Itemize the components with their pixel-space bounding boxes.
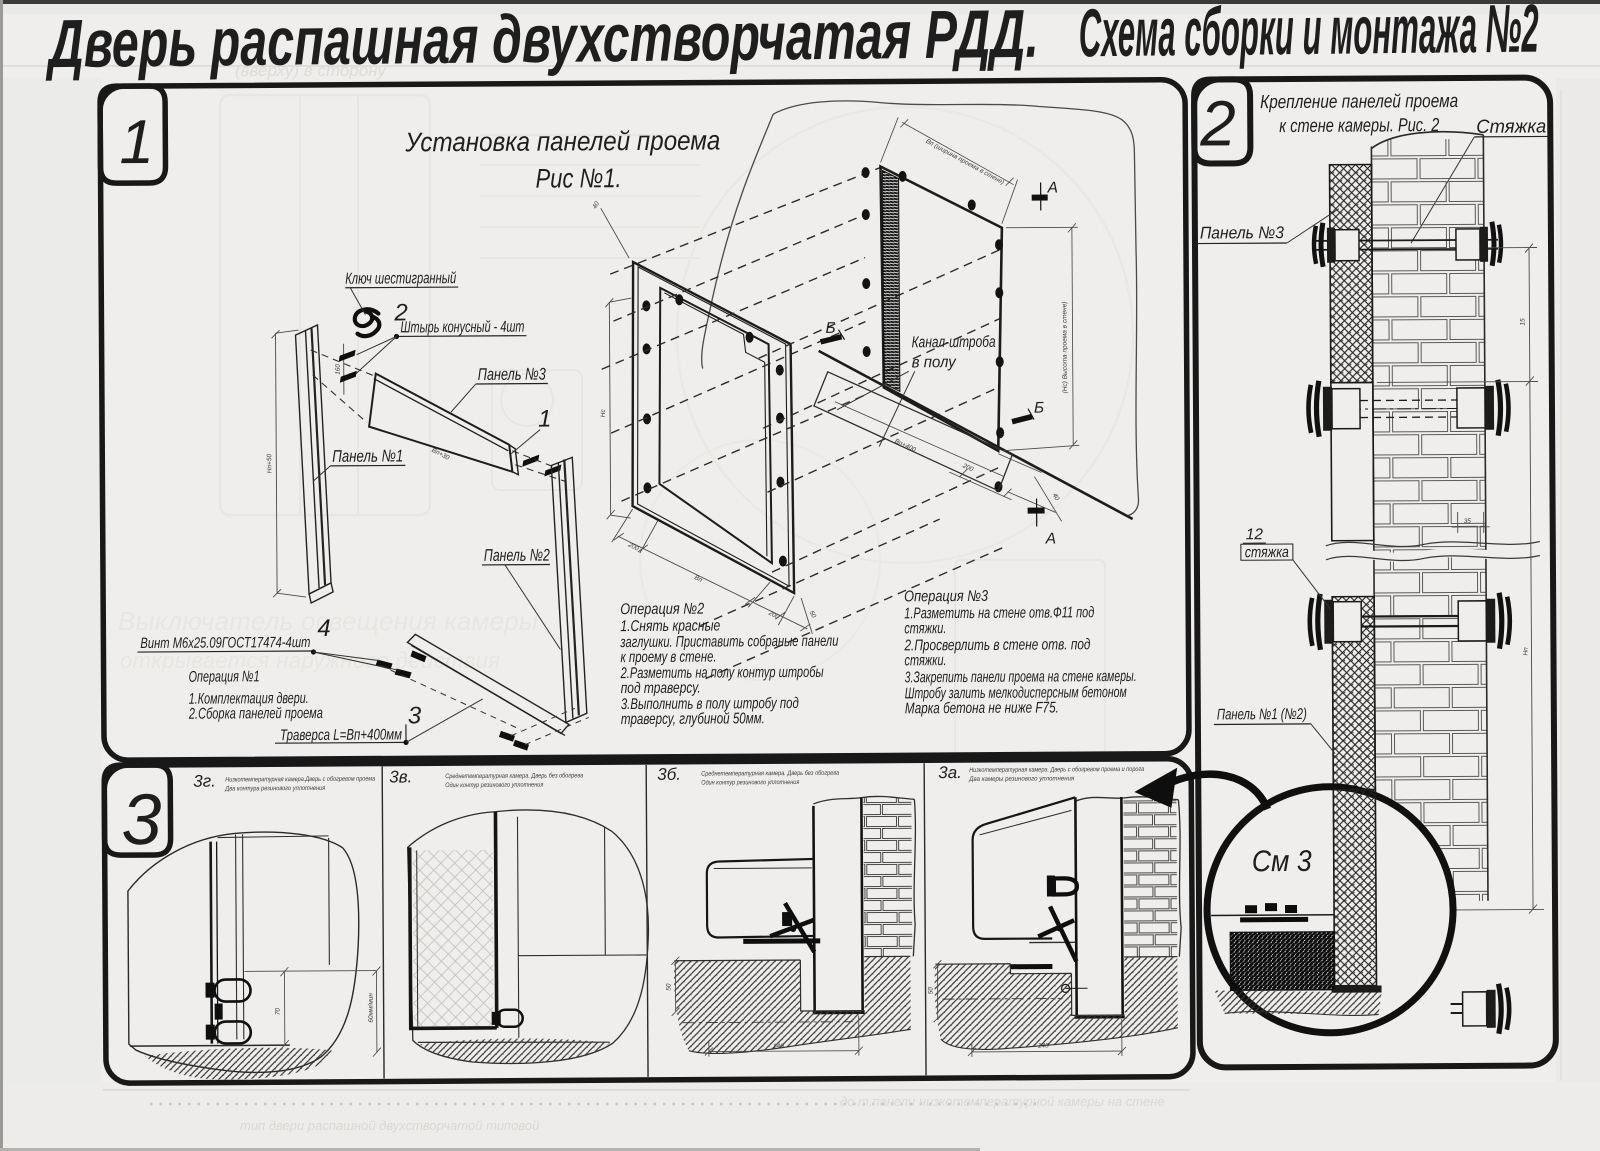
svg-text:Операция №1: Операция №1 bbox=[189, 668, 260, 685]
svg-text:12: 12 bbox=[1246, 526, 1264, 543]
svg-text:Панель №1: Панель №1 bbox=[332, 446, 403, 465]
svg-text:160: 160 bbox=[335, 364, 342, 375]
svg-text:Среднетемпературная камера. Дв: Среднетемпературная камера. Дверь без об… bbox=[701, 769, 839, 778]
svg-text:3в.: 3в. bbox=[389, 767, 412, 786]
svg-text:3: 3 bbox=[121, 780, 162, 860]
svg-text:35: 35 bbox=[1464, 518, 1472, 525]
svg-text:Штырь конусный - 4шт: Штырь конусный - 4шт bbox=[400, 319, 524, 337]
svg-text:Рис №1.: Рис №1. bbox=[535, 163, 621, 194]
svg-text:Нп+50: Нп+50 bbox=[266, 454, 273, 474]
svg-text:стяжки.: стяжки. bbox=[904, 620, 946, 637]
svg-text:1: 1 bbox=[119, 108, 154, 177]
svg-text:Марка бетона не ниже F75.: Марка бетона не ниже F75. bbox=[905, 699, 1059, 717]
svg-text:3: 3 bbox=[408, 702, 422, 729]
svg-text:2: 2 bbox=[1199, 87, 1236, 159]
svg-text:70: 70 bbox=[275, 1008, 282, 1016]
svg-text:Установка панелей проема: Установка панелей проема bbox=[404, 125, 720, 157]
svg-text:Нс: Нс bbox=[600, 408, 607, 417]
svg-text:Среднетемпературная камера. Дв: Среднетемпературная камера. Дверь без об… bbox=[445, 771, 583, 780]
svg-text:3г.: 3г. bbox=[193, 772, 216, 791]
svg-text:140: 140 bbox=[1038, 1042, 1049, 1049]
svg-text:См 3: См 3 bbox=[1252, 845, 1312, 878]
svg-text:Панель №3: Панель №3 bbox=[1200, 223, 1285, 243]
svg-text:Операция №3: Операция №3 bbox=[904, 588, 988, 606]
svg-text:50: 50 bbox=[665, 983, 672, 991]
svg-text:до т.панели низкотемпературной: до т.панели низкотемпературной камеры на… bbox=[840, 1094, 1165, 1109]
svg-text:Два контура резинового уплотне: Два контура резинового уплотнения bbox=[224, 785, 325, 793]
svg-text:Б: Б bbox=[1034, 400, 1044, 417]
svg-text:Схема сборки и монтажа №2: Схема сборки и монтажа №2 bbox=[1078, 0, 1539, 71]
svg-text:А: А bbox=[1047, 179, 1058, 196]
svg-text:Один контур резинового уплотне: Один контур резинового уплотнения bbox=[445, 781, 543, 790]
svg-text:Панель №1 (№2): Панель №1 (№2) bbox=[1217, 706, 1307, 724]
svg-text:60мм/мин: 60мм/мин bbox=[368, 993, 375, 1023]
svg-text:3а.: 3а. bbox=[938, 763, 962, 782]
svg-text:в полу: в полу bbox=[912, 354, 957, 371]
svg-text:Б: Б bbox=[825, 320, 835, 337]
svg-text:Траверса L=Вп+400мм: Траверса L=Вп+400мм bbox=[280, 726, 402, 744]
svg-text:50: 50 bbox=[928, 987, 935, 995]
svg-text:(Нс) Высота проема в стене): (Нс) Высота проема в стене) bbox=[1061, 301, 1069, 393]
svg-text:Дверь распашная двухстворчатая: Дверь распашная двухстворчатая РДД. bbox=[45, 0, 1039, 82]
svg-text:Крепление панелей проема: Крепление панелей проема bbox=[1260, 91, 1458, 113]
svg-text:140: 140 bbox=[773, 1043, 784, 1050]
svg-text:15: 15 bbox=[1519, 318, 1526, 326]
svg-text:стяжки.: стяжки. bbox=[904, 652, 946, 669]
svg-text:Нп: Нп bbox=[1522, 647, 1529, 656]
svg-text:Операция №2: Операция №2 bbox=[620, 601, 704, 619]
svg-text:Винт М6х25.09ГОСТ17474-4шт: Винт М6х25.09ГОСТ17474-4шт bbox=[140, 634, 310, 652]
svg-text:А: А bbox=[1045, 530, 1056, 547]
svg-text:Низкотемпературная камера.Двер: Низкотемпературная камера.Дверь с обогре… bbox=[225, 775, 375, 784]
svg-text:Два камеры резинового уплотнен: Два камеры резинового уплотнения bbox=[968, 775, 1074, 783]
svg-text:4: 4 bbox=[317, 615, 331, 642]
svg-text:траверсу, глубиной 50мм.: траверсу, глубиной 50мм. bbox=[621, 710, 765, 728]
svg-text:Канал-штроба: Канал-штроба bbox=[912, 334, 996, 352]
svg-text:Панель №2: Панель №2 bbox=[484, 546, 551, 565]
svg-text:3б.: 3б. bbox=[657, 765, 681, 784]
svg-text:стяжка: стяжка bbox=[1245, 544, 1289, 561]
svg-text:Низкотемпературная камера. Две: Низкотемпературная камера. Дверь с обогр… bbox=[969, 765, 1144, 774]
svg-text:1.Снять красные: 1.Снять красные bbox=[620, 617, 720, 635]
svg-text:Один контур резинового уплотне: Один контур резинового уплотнения bbox=[701, 778, 799, 787]
svg-text:Панель №3: Панель №3 bbox=[478, 365, 547, 384]
svg-text:1: 1 bbox=[538, 406, 552, 433]
svg-text:2.Сборка панелей проема: 2.Сборка панелей проема bbox=[188, 705, 323, 723]
svg-text:тип двери распашной двухстворч: тип двери распашной двухстворчатой типов… bbox=[240, 1118, 539, 1133]
svg-text:под траверсу.: под траверсу. bbox=[621, 680, 701, 697]
svg-text:Ключ шестигранный: Ключ шестигранный bbox=[345, 270, 456, 288]
svg-text:к проему в стене.: к проему в стене. bbox=[620, 649, 716, 667]
svg-text:Стяжка: Стяжка bbox=[1476, 116, 1546, 137]
